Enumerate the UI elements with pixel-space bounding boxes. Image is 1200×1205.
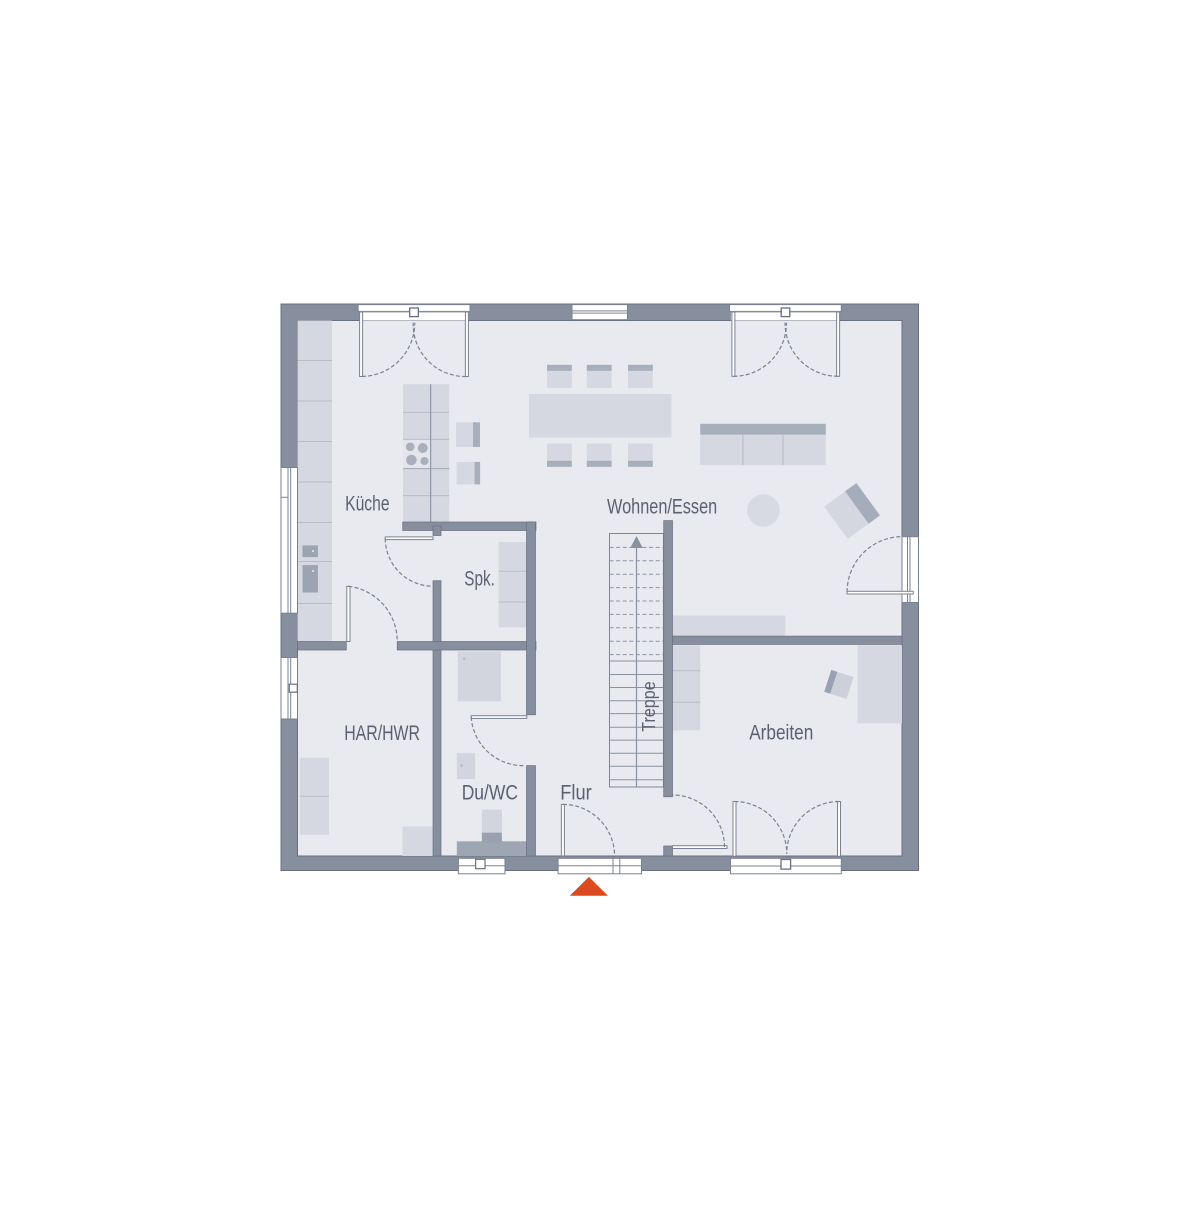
svg-text:HAR/HWR: HAR/HWR [344, 722, 420, 745]
svg-text:Flur: Flur [560, 782, 591, 805]
svg-text:Treppe: Treppe [639, 681, 659, 732]
svg-text:Du/WC: Du/WC [462, 782, 518, 805]
svg-text:Wohnen/Essen: Wohnen/Essen [607, 496, 717, 519]
svg-text:Spk.: Spk. [464, 567, 495, 590]
svg-text:Küche: Küche [345, 493, 390, 516]
svg-text:Arbeiten: Arbeiten [749, 722, 813, 745]
